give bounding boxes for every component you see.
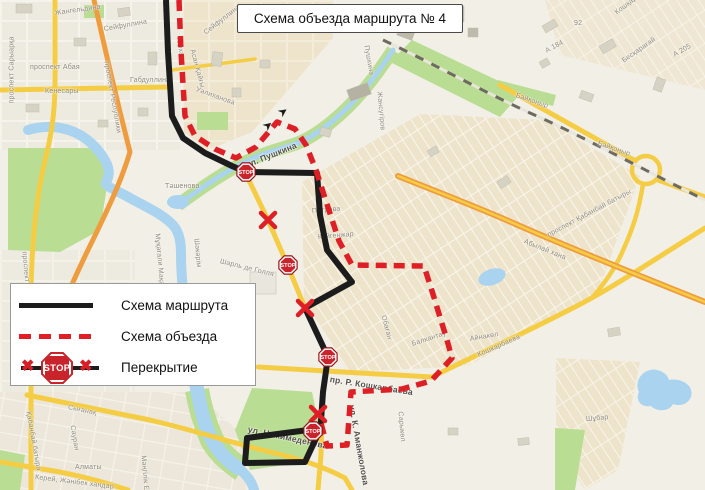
stop-sign-icon: STOP — [319, 348, 337, 366]
closure-x-icon: ✖ — [21, 356, 34, 378]
route-overlay: STOPSTOPSTOPSTOP — [0, 0, 705, 490]
detour-line-sample — [19, 321, 105, 352]
closure-x-icon: ✖ — [79, 356, 92, 378]
legend-item-route: Схема маршрута — [19, 290, 255, 321]
stop-sign-icon: STOP — [41, 352, 73, 384]
svg-text:STOP: STOP — [305, 429, 320, 435]
legend-item-detour: Схема объезда — [19, 321, 255, 352]
direction-arrow-icon — [278, 106, 289, 117]
closure-x-icon — [261, 213, 275, 227]
page-title: Схема объезда маршрута № 4 — [237, 4, 463, 33]
svg-text:STOP: STOP — [280, 263, 295, 269]
stop-sign-icon: STOP — [237, 163, 255, 181]
map: ЖангельдинаСейфуллинаСейфуллинапроспект … — [0, 0, 705, 490]
legend: Схема маршрута Схема объезда ✖ ✖ STOP Пе… — [10, 283, 256, 386]
legend-closure-label: Перекрытие — [121, 360, 198, 375]
svg-text:STOP: STOP — [320, 355, 335, 361]
legend-item-closure: ✖ ✖ STOP Перекрытие — [19, 352, 255, 383]
legend-detour-label: Схема объезда — [121, 329, 217, 344]
stop-sign-icon: STOP — [304, 422, 322, 440]
route-line-sample — [19, 290, 105, 321]
svg-text:STOP: STOP — [238, 170, 253, 176]
stop-sign-icon: STOP — [279, 256, 297, 274]
legend-route-label: Схема маршрута — [121, 298, 228, 313]
closure-sample: ✖ ✖ STOP — [19, 352, 105, 383]
